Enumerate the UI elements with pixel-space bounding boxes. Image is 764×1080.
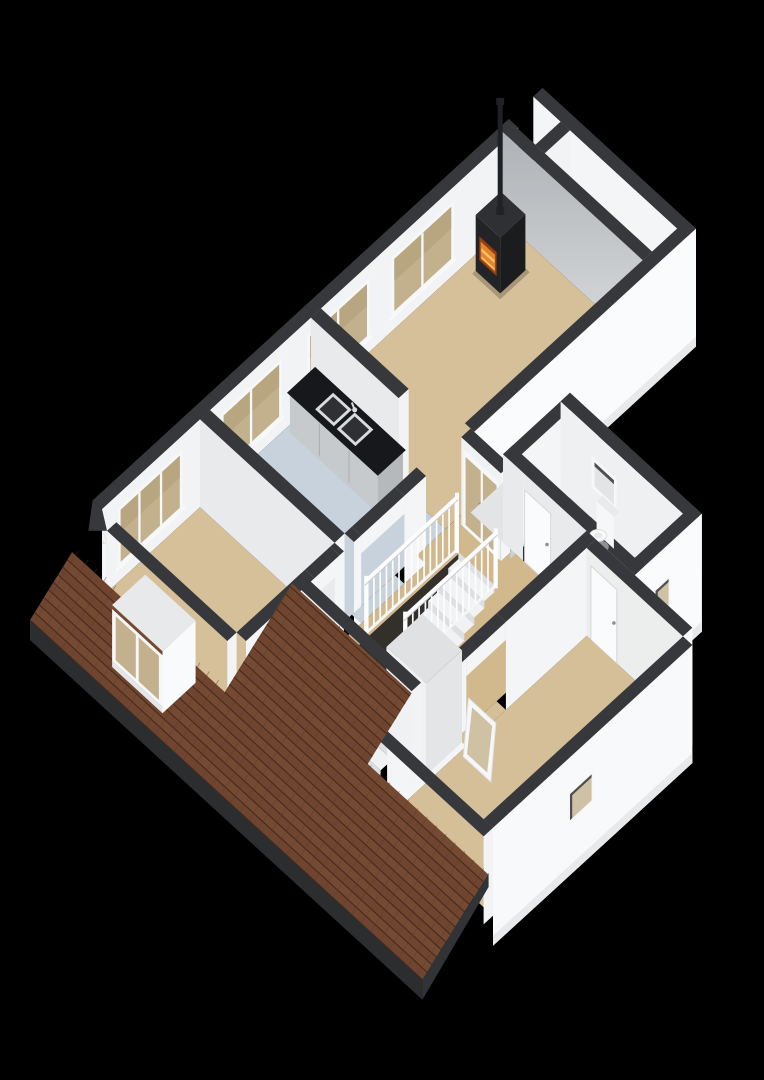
floorplan-canvas bbox=[0, 0, 764, 1080]
floorplan-3d-view[interactable] bbox=[0, 0, 764, 1080]
